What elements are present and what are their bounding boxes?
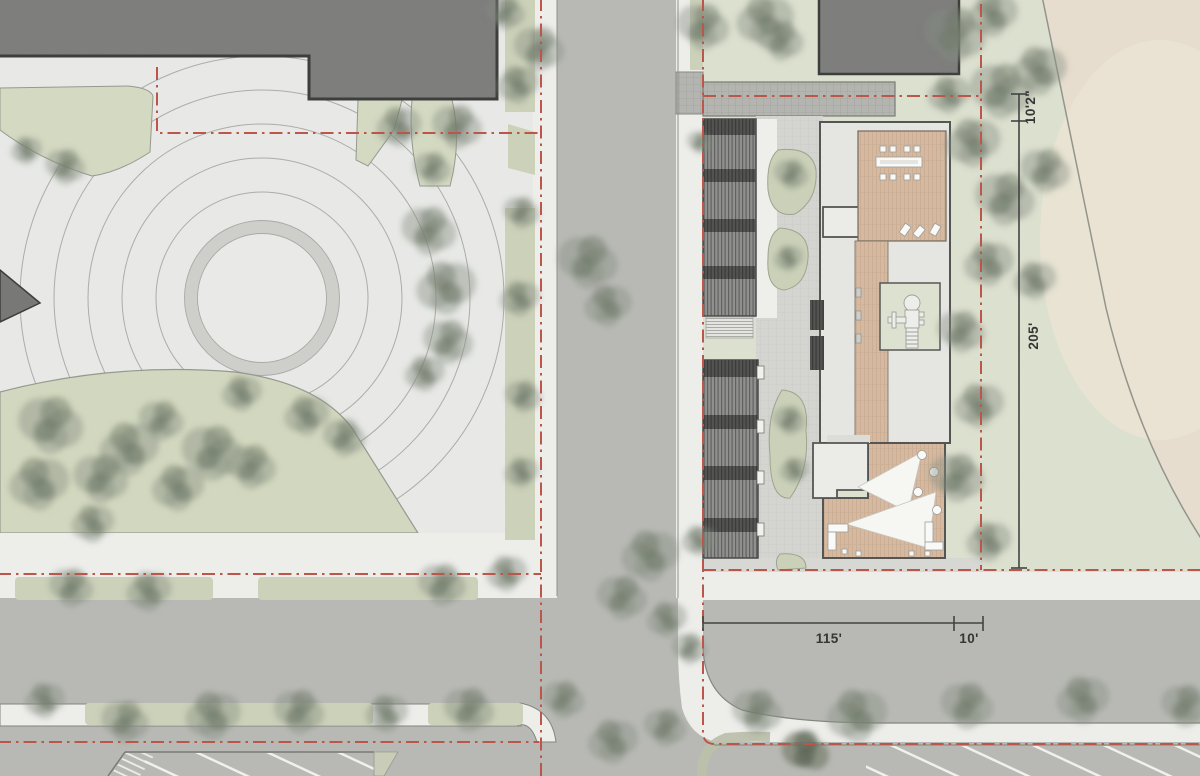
paper-grain bbox=[0, 0, 1200, 776]
site-plan-canvas: 10'2" 205' 115' 10' bbox=[0, 0, 1200, 776]
site-plan-stage: 10'2" 205' 115' 10' bbox=[0, 0, 1200, 776]
